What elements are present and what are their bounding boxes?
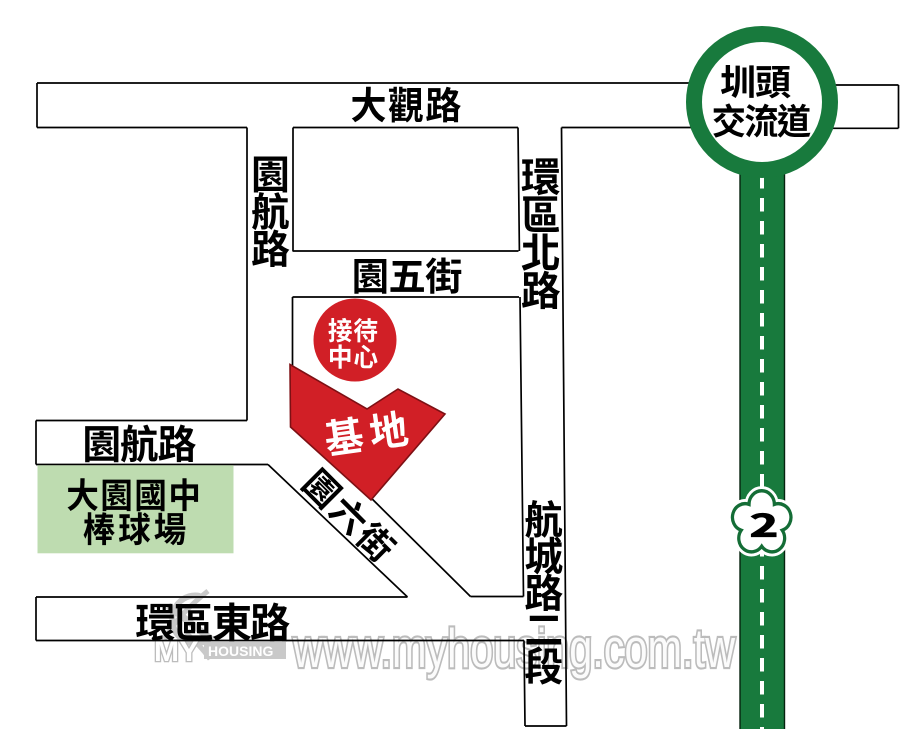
svg-text:www.myhousing.com.tw: www.myhousing.com.tw xyxy=(292,617,735,679)
svg-text:HOUSING: HOUSING xyxy=(208,643,273,659)
